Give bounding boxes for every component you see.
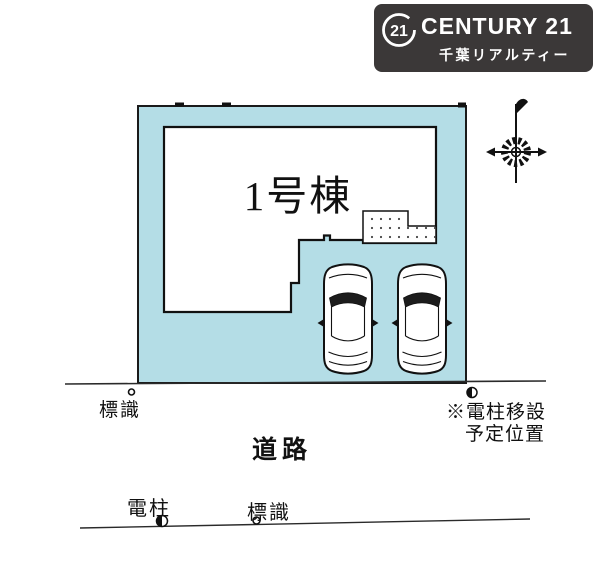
brand-subtitle: 千葉リアルティー (374, 45, 593, 65)
compass-icon (486, 99, 547, 183)
site-plan-drawing (0, 0, 600, 576)
road-label: 道路 (252, 430, 312, 466)
sign-label-upper: 標識 (99, 395, 141, 422)
car-1-icon (318, 264, 379, 373)
car-2-icon (392, 264, 453, 373)
pole-relocation-marker-icon (467, 388, 477, 398)
pole-relocation-label-line2: 予定位置 (465, 419, 545, 446)
building-label: 1号棟 (236, 162, 360, 222)
pole-label-lower: 電柱 (127, 492, 171, 521)
boundary-mark (458, 103, 466, 108)
boundary-mark (175, 103, 184, 107)
sign-label-lower: 標識 (247, 496, 291, 525)
brand-logo: 21 CENTURY 21 千葉リアルティー (374, 4, 593, 72)
seal-mark-text: 21 (390, 23, 408, 40)
boundary-mark (222, 103, 231, 107)
site-plan-canvas: 1号棟 標識 ※電柱移設 予定位置 道路 電柱 標識 21 CENTURY 21… (0, 0, 600, 576)
century21-seal-icon: 21 (380, 11, 418, 49)
brand-name: CENTURY 21 (421, 13, 573, 40)
